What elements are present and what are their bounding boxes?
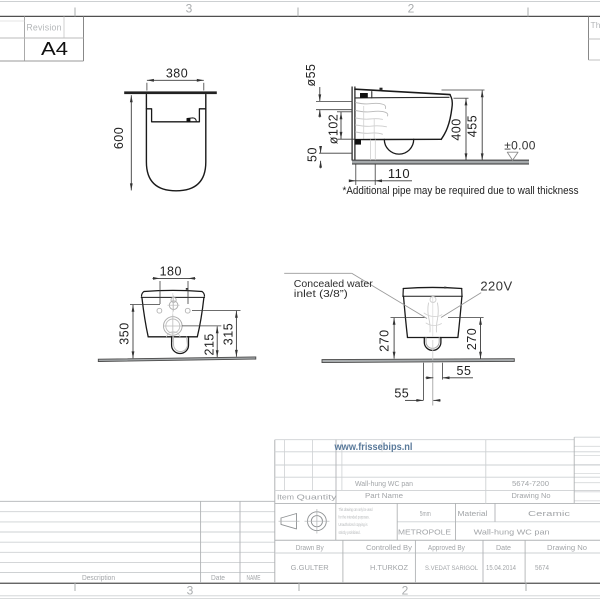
svg-text:55: 55 — [457, 364, 472, 378]
svg-text:5mm: 5mm — [420, 511, 431, 518]
svg-text:METROPOLE: METROPOLE — [398, 528, 451, 537]
svg-text:220V: 220V — [480, 279, 512, 294]
svg-text:for the intended purposes.: for the intended purposes. — [339, 515, 370, 520]
svg-text:5674: 5674 — [535, 565, 549, 572]
svg-text:400: 400 — [450, 118, 464, 140]
svg-text:Drawn By: Drawn By — [296, 545, 324, 552]
svg-text:215: 215 — [203, 333, 217, 355]
svg-text:Quantity: Quantity — [297, 493, 337, 502]
svg-text:270: 270 — [465, 328, 479, 350]
svg-text:H.TURKOZ: H.TURKOZ — [370, 565, 409, 572]
svg-text:Th: Th — [591, 20, 600, 30]
svg-text:NAME: NAME — [247, 575, 261, 582]
svg-text:Revision: Revision — [26, 23, 61, 33]
svg-text:110: 110 — [388, 166, 410, 181]
svg-text:S.VEDAT SARIGOL: S.VEDAT SARIGOL — [425, 565, 478, 572]
svg-text:3: 3 — [187, 583, 194, 597]
svg-text:15.04.2014: 15.04.2014 — [486, 565, 516, 572]
svg-text:Unauthorized copying is: Unauthorized copying is — [339, 522, 368, 527]
svg-text:Drawing No: Drawing No — [547, 545, 587, 552]
svg-text:Wall-hung WC pan: Wall-hung WC pan — [355, 481, 413, 488]
svg-text:Date: Date — [496, 545, 511, 552]
svg-text:380: 380 — [166, 67, 188, 81]
svg-text:Drawing No: Drawing No — [512, 493, 551, 500]
svg-text:455: 455 — [465, 115, 479, 137]
svg-text:55: 55 — [394, 386, 409, 400]
svg-text:Controlled By: Controlled By — [366, 545, 413, 552]
svg-text:350: 350 — [118, 322, 132, 344]
svg-text:ø55: ø55 — [304, 63, 318, 86]
svg-text:Item: Item — [277, 493, 294, 502]
svg-text:3: 3 — [186, 2, 193, 16]
svg-text:Wall-hung WC pan: Wall-hung WC pan — [474, 530, 550, 537]
svg-text:50: 50 — [305, 147, 319, 162]
svg-text:600: 600 — [112, 127, 126, 149]
svg-text:strictly prohibited.: strictly prohibited. — [339, 530, 361, 535]
svg-text:±0.00: ±0.00 — [504, 139, 535, 153]
svg-text:180: 180 — [160, 265, 182, 279]
svg-text:Ceramic: Ceramic — [528, 511, 571, 518]
svg-text:5674-7200: 5674-7200 — [512, 481, 549, 488]
svg-text:inlet (3/8”): inlet (3/8”) — [294, 289, 348, 300]
svg-text:Date: Date — [211, 573, 225, 582]
svg-text:G.GULTER: G.GULTER — [291, 565, 329, 572]
svg-text:270: 270 — [378, 329, 392, 351]
svg-text:This drawing can only be used: This drawing can only be used — [339, 507, 373, 512]
svg-text:2: 2 — [408, 2, 415, 16]
svg-text:Part Name: Part Name — [365, 493, 403, 500]
svg-text:Material: Material — [458, 511, 489, 518]
svg-text:315: 315 — [221, 323, 235, 345]
svg-text:*Additional pipe may be requir: *Additional pipe may be required due to … — [343, 185, 580, 197]
svg-text:2: 2 — [402, 583, 409, 597]
svg-text:A4: A4 — [41, 39, 68, 59]
svg-text:Approved By: Approved By — [428, 545, 465, 552]
svg-text:www.frissebips.nl: www.frissebips.nl — [334, 442, 413, 453]
svg-text:Description: Description — [82, 573, 115, 582]
svg-text:ø102: ø102 — [326, 114, 340, 145]
